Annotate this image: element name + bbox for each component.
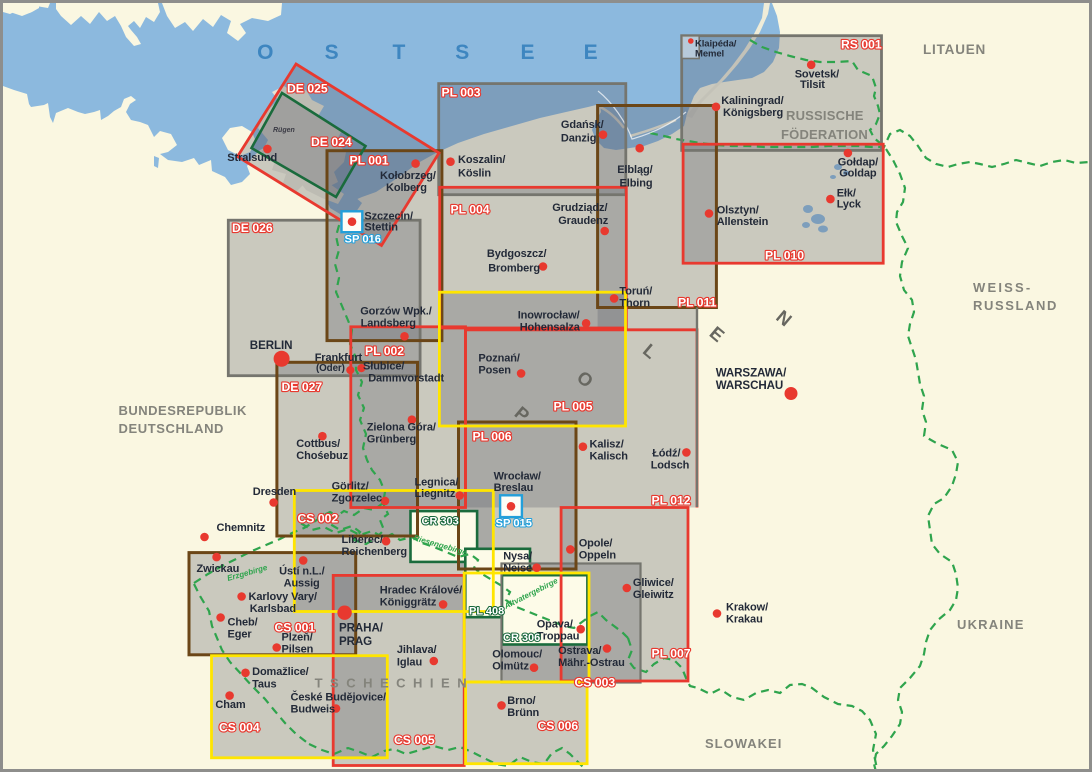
svg-text:Dresden: Dresden — [253, 486, 297, 498]
svg-text:PRAHA/: PRAHA/ — [339, 622, 384, 635]
svg-text:PL 408: PL 408 — [469, 606, 504, 618]
svg-text:Dammvorstadt: Dammvorstadt — [368, 373, 444, 385]
svg-text:Kalisch: Kalisch — [590, 450, 629, 462]
svg-text:Bromberg: Bromberg — [488, 263, 540, 275]
svg-text:SP 016: SP 016 — [345, 234, 382, 246]
svg-text:Landsberg: Landsberg — [361, 318, 416, 330]
svg-text:Kołobrzeg/: Kołobrzeg/ — [380, 170, 436, 182]
svg-text:Nysa/: Nysa/ — [503, 551, 532, 563]
svg-text:CS 002: CS 002 — [298, 512, 339, 526]
svg-text:Hradec Králové/: Hradec Králové/ — [380, 585, 462, 597]
svg-text:T: T — [392, 41, 405, 64]
svg-text:Elbing: Elbing — [620, 178, 653, 190]
svg-text:PL 010: PL 010 — [765, 249, 804, 263]
svg-text:PL 005: PL 005 — [554, 400, 593, 414]
svg-text:PL 011: PL 011 — [678, 296, 717, 310]
svg-text:Bydgoszcz/: Bydgoszcz/ — [487, 248, 547, 260]
svg-text:Słubice/: Słubice/ — [363, 361, 404, 373]
svg-text:Karlsbad: Karlsbad — [250, 603, 296, 615]
svg-text:Ostrava/: Ostrava/ — [558, 645, 601, 657]
svg-text:Gliwice/: Gliwice/ — [633, 577, 674, 589]
svg-text:Liegnitz: Liegnitz — [415, 488, 456, 500]
svg-text:Frankfurt: Frankfurt — [315, 352, 363, 364]
svg-text:CS 001: CS 001 — [275, 621, 316, 635]
svg-text:LITAUEN: LITAUEN — [923, 42, 986, 57]
svg-text:Kalisz/: Kalisz/ — [590, 438, 624, 450]
svg-text:WEISS-: WEISS- — [973, 280, 1032, 295]
svg-text:Brno/: Brno/ — [507, 695, 535, 707]
svg-text:Lodsch: Lodsch — [651, 460, 690, 472]
svg-text:Cham: Cham — [215, 699, 245, 711]
svg-text:S: S — [325, 41, 339, 64]
svg-text:PL 004: PL 004 — [451, 203, 490, 217]
svg-text:S: S — [455, 41, 469, 64]
svg-text:Posen: Posen — [478, 364, 511, 376]
svg-text:Thorn: Thorn — [619, 298, 650, 310]
svg-text:SLOWAKEI: SLOWAKEI — [705, 736, 782, 751]
svg-text:Lyck: Lyck — [837, 199, 862, 211]
svg-text:Szczecin/: Szczecin/ — [364, 210, 413, 222]
svg-text:TSCHECHIEN: TSCHECHIEN — [315, 676, 475, 691]
svg-text:Aussig: Aussig — [284, 578, 320, 590]
svg-text:PL 012: PL 012 — [652, 494, 691, 508]
svg-text:Gołdap/: Gołdap/ — [838, 157, 878, 169]
svg-text:DE 026: DE 026 — [232, 221, 273, 235]
svg-text:Krakow/: Krakow/ — [726, 602, 768, 614]
svg-text:Gdańsk/: Gdańsk/ — [561, 119, 604, 131]
svg-text:Krakau: Krakau — [726, 614, 763, 626]
svg-text:CS 006: CS 006 — [538, 719, 579, 733]
svg-text:Grünberg: Grünberg — [367, 433, 416, 445]
svg-text:Oppeln: Oppeln — [579, 550, 617, 562]
svg-text:Köslin: Köslin — [458, 167, 491, 179]
svg-text:Zielona Góra/: Zielona Góra/ — [367, 422, 436, 434]
svg-text:PL 006: PL 006 — [473, 430, 512, 444]
svg-text:Tilsit: Tilsit — [800, 79, 825, 91]
svg-text:Memel: Memel — [695, 48, 724, 59]
svg-text:PL 001: PL 001 — [350, 154, 389, 168]
svg-text:PL 007: PL 007 — [652, 647, 691, 661]
svg-text:SP 015: SP 015 — [496, 518, 533, 530]
svg-text:PRAG: PRAG — [339, 635, 372, 648]
svg-text:Wrocław/: Wrocław/ — [494, 471, 541, 483]
svg-text:Ełk/: Ełk/ — [837, 187, 856, 199]
svg-text:(Oder): (Oder) — [316, 363, 345, 374]
svg-text:RS 001: RS 001 — [841, 38, 882, 52]
svg-text:Opava/: Opava/ — [537, 619, 573, 631]
svg-text:Inowrocław/: Inowrocław/ — [518, 310, 580, 322]
svg-text:Łódź/: Łódź/ — [652, 448, 680, 460]
svg-text:Domažlice/: Domažlice/ — [252, 666, 309, 678]
svg-text:DE 024: DE 024 — [311, 135, 352, 149]
svg-text:E: E — [520, 41, 534, 64]
svg-text:Neise: Neise — [503, 562, 532, 574]
svg-text:Kaliningrad/: Kaliningrad/ — [721, 95, 783, 107]
svg-text:PL 003: PL 003 — [442, 86, 481, 100]
svg-text:Grudziądz/: Grudziądz/ — [552, 202, 607, 214]
svg-text:Görlitz/: Görlitz/ — [332, 481, 369, 493]
svg-text:Eger: Eger — [228, 629, 253, 641]
svg-text:Graudenz: Graudenz — [558, 215, 609, 227]
svg-text:CS 003: CS 003 — [575, 676, 616, 690]
svg-text:Gleiwitz: Gleiwitz — [633, 589, 674, 601]
svg-text:CS 004: CS 004 — [219, 721, 260, 735]
svg-text:Cheb/: Cheb/ — [228, 617, 258, 629]
svg-text:Chemnitz: Chemnitz — [217, 522, 266, 534]
svg-text:Zgorzelec: Zgorzelec — [332, 493, 382, 505]
svg-text:Jihlava/: Jihlava/ — [397, 644, 437, 656]
svg-text:BERLIN: BERLIN — [250, 339, 293, 352]
svg-text:Reichenberg: Reichenberg — [342, 546, 408, 558]
svg-text:Pilsen: Pilsen — [282, 644, 314, 656]
svg-text:O: O — [257, 41, 273, 64]
svg-text:Olmütz: Olmütz — [492, 660, 529, 672]
svg-text:Troppau: Troppau — [537, 631, 580, 643]
svg-text:Königsberg: Königsberg — [723, 107, 783, 119]
svg-text:Karlovy Vary/: Karlovy Vary/ — [249, 591, 317, 603]
svg-text:FÖDERATION: FÖDERATION — [781, 127, 868, 142]
svg-text:Iglau: Iglau — [397, 656, 422, 668]
svg-text:Poznań/: Poznań/ — [478, 352, 520, 364]
svg-text:UKRAINE: UKRAINE — [957, 617, 1025, 632]
svg-text:Stettin: Stettin — [364, 222, 398, 234]
svg-text:DE 025: DE 025 — [287, 82, 328, 96]
svg-text:Elbląg/: Elbląg/ — [617, 164, 652, 176]
svg-text:Königgrätz: Königgrätz — [380, 596, 437, 608]
svg-text:Kolberg: Kolberg — [386, 182, 427, 194]
svg-text:Mähr.-Ostrau: Mähr.-Ostrau — [558, 657, 625, 669]
svg-text:CS 005: CS 005 — [394, 733, 435, 747]
svg-text:Opole/: Opole/ — [579, 538, 613, 550]
svg-text:Legnica/: Legnica/ — [415, 476, 459, 488]
svg-text:Koszalin/: Koszalin/ — [458, 154, 505, 166]
svg-text:Danzig: Danzig — [561, 133, 596, 145]
svg-text:E: E — [584, 41, 598, 64]
svg-text:RUSSLAND: RUSSLAND — [973, 298, 1058, 313]
svg-text:Cottbus/: Cottbus/ — [296, 438, 340, 450]
svg-text:PL 002: PL 002 — [365, 344, 404, 358]
svg-text:Chośebuz: Chośebuz — [296, 450, 348, 462]
svg-text:BUNDESREPUBLIK: BUNDESREPUBLIK — [119, 403, 247, 418]
svg-text:DE 027: DE 027 — [282, 380, 323, 394]
svg-text:České Budějovice/: České Budějovice/ — [291, 691, 387, 704]
svg-text:Olomouc/: Olomouc/ — [492, 648, 542, 660]
svg-text:Gorzów Wpk./: Gorzów Wpk./ — [360, 306, 432, 318]
svg-text:WARSCHAU: WARSCHAU — [716, 379, 783, 392]
svg-text:Ústí n.L./: Ústí n.L./ — [279, 565, 324, 578]
svg-text:Taus: Taus — [252, 678, 276, 690]
svg-text:Liberec/: Liberec/ — [342, 534, 383, 546]
svg-text:Allenstein: Allenstein — [717, 216, 769, 228]
svg-text:CR 306: CR 306 — [503, 632, 540, 644]
svg-text:CR 303: CR 303 — [422, 516, 459, 528]
svg-text:Breslau: Breslau — [494, 482, 534, 494]
svg-text:RUSSISCHE: RUSSISCHE — [786, 108, 864, 123]
svg-text:DEUTSCHLAND: DEUTSCHLAND — [119, 421, 225, 436]
svg-text:Budweis: Budweis — [291, 704, 336, 716]
svg-text:Brünn: Brünn — [507, 707, 539, 719]
svg-text:Olsztyn/: Olsztyn/ — [717, 205, 759, 217]
svg-text:WARSZAWA/: WARSZAWA/ — [716, 367, 787, 380]
svg-text:Rügen: Rügen — [273, 127, 295, 134]
svg-text:Toruń/: Toruń/ — [619, 285, 652, 297]
svg-text:Stralsund: Stralsund — [227, 152, 277, 164]
svg-text:Goldap: Goldap — [839, 168, 877, 180]
svg-text:Hohensalza: Hohensalza — [520, 322, 581, 334]
